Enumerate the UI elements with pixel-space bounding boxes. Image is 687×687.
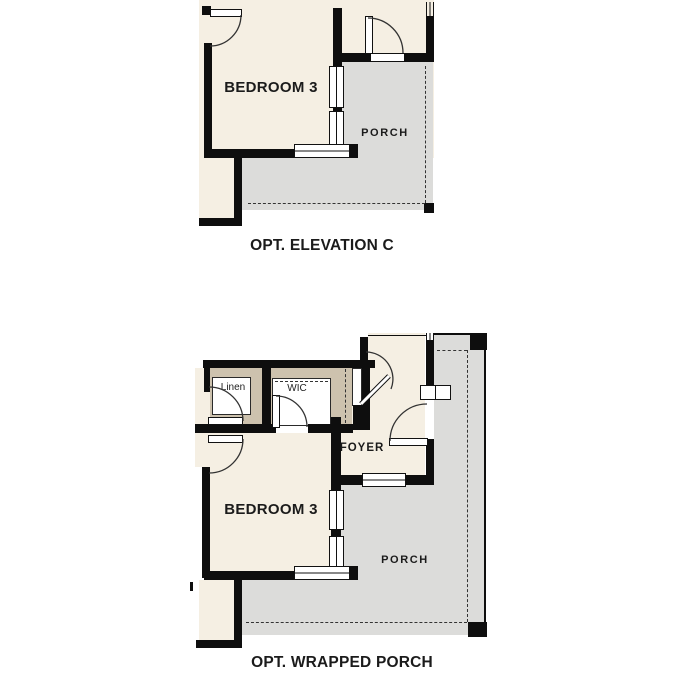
window	[294, 144, 350, 158]
wall-segment	[204, 43, 212, 157]
window	[294, 566, 350, 580]
door-leaf	[272, 395, 280, 428]
door-leaf	[210, 9, 242, 17]
room-label-foyer: FOYER	[322, 442, 402, 454]
wall-segment	[262, 360, 271, 432]
porch-floor	[242, 580, 341, 635]
wall-segment	[203, 360, 375, 368]
room-label-porch: PORCH	[345, 127, 425, 139]
hall-floor	[199, 580, 235, 640]
floorplan-sheet: BEDROOM 3 PORCH OPT. ELEVATION C	[0, 0, 687, 687]
wall-segment	[353, 405, 370, 430]
wall-segment	[426, 16, 434, 61]
coat-closet-door-panel	[352, 368, 362, 406]
closet-rod-dashed	[345, 369, 346, 423]
coat-closet-poche	[334, 368, 352, 424]
window-end-cap	[350, 566, 358, 580]
wall-segment	[333, 53, 371, 62]
door-leaf	[208, 417, 243, 425]
wall-segment	[234, 158, 242, 226]
window	[362, 473, 406, 487]
caption-opt-elevation-c: OPT. ELEVATION C	[202, 237, 442, 255]
wall-segment	[360, 337, 368, 360]
room-label-wic: WIC	[267, 383, 327, 394]
porch-dashed-edge	[246, 622, 467, 623]
porch-corner-post	[424, 203, 434, 213]
wall-cut-symbol	[426, 333, 434, 341]
porch-edge-line	[484, 333, 486, 635]
caption-opt-wrapped-porch: OPT. WRAPPED PORCH	[222, 654, 462, 672]
window	[420, 385, 451, 400]
wall-cut-symbol	[426, 2, 434, 16]
room-label-linen: Linen	[203, 382, 263, 393]
wall-segment	[362, 360, 370, 407]
closet-shelf-dashed	[275, 381, 328, 382]
room-label-bedroom-3: BEDROOM 3	[191, 79, 351, 96]
wall-segment	[204, 149, 297, 158]
wall-segment	[196, 640, 242, 648]
porch-corner-post	[470, 333, 487, 350]
wall-segment	[190, 582, 193, 591]
wall-segment	[204, 571, 297, 580]
porch-dashed-edge	[437, 350, 467, 351]
porch-dashed-edge	[248, 203, 425, 204]
porch-corner-post	[468, 622, 487, 637]
door-leaf	[365, 16, 373, 54]
wall-segment	[199, 218, 242, 226]
room-label-bedroom-3: BEDROOM 3	[191, 501, 351, 518]
wall-segment	[202, 467, 210, 578]
door-threshold	[371, 53, 404, 62]
porch-edge-line	[434, 333, 470, 335]
room-label-porch: PORCH	[365, 554, 445, 566]
wall-segment	[195, 424, 276, 433]
porch-dashed-edge	[467, 350, 468, 622]
door-leaf	[208, 435, 243, 443]
foyer-floor	[368, 333, 425, 361]
porch-edge-line	[368, 335, 426, 336]
porch-dashed-edge	[425, 66, 426, 203]
window-end-cap	[350, 144, 358, 158]
wall-segment	[426, 340, 434, 387]
wall-segment	[234, 580, 242, 648]
